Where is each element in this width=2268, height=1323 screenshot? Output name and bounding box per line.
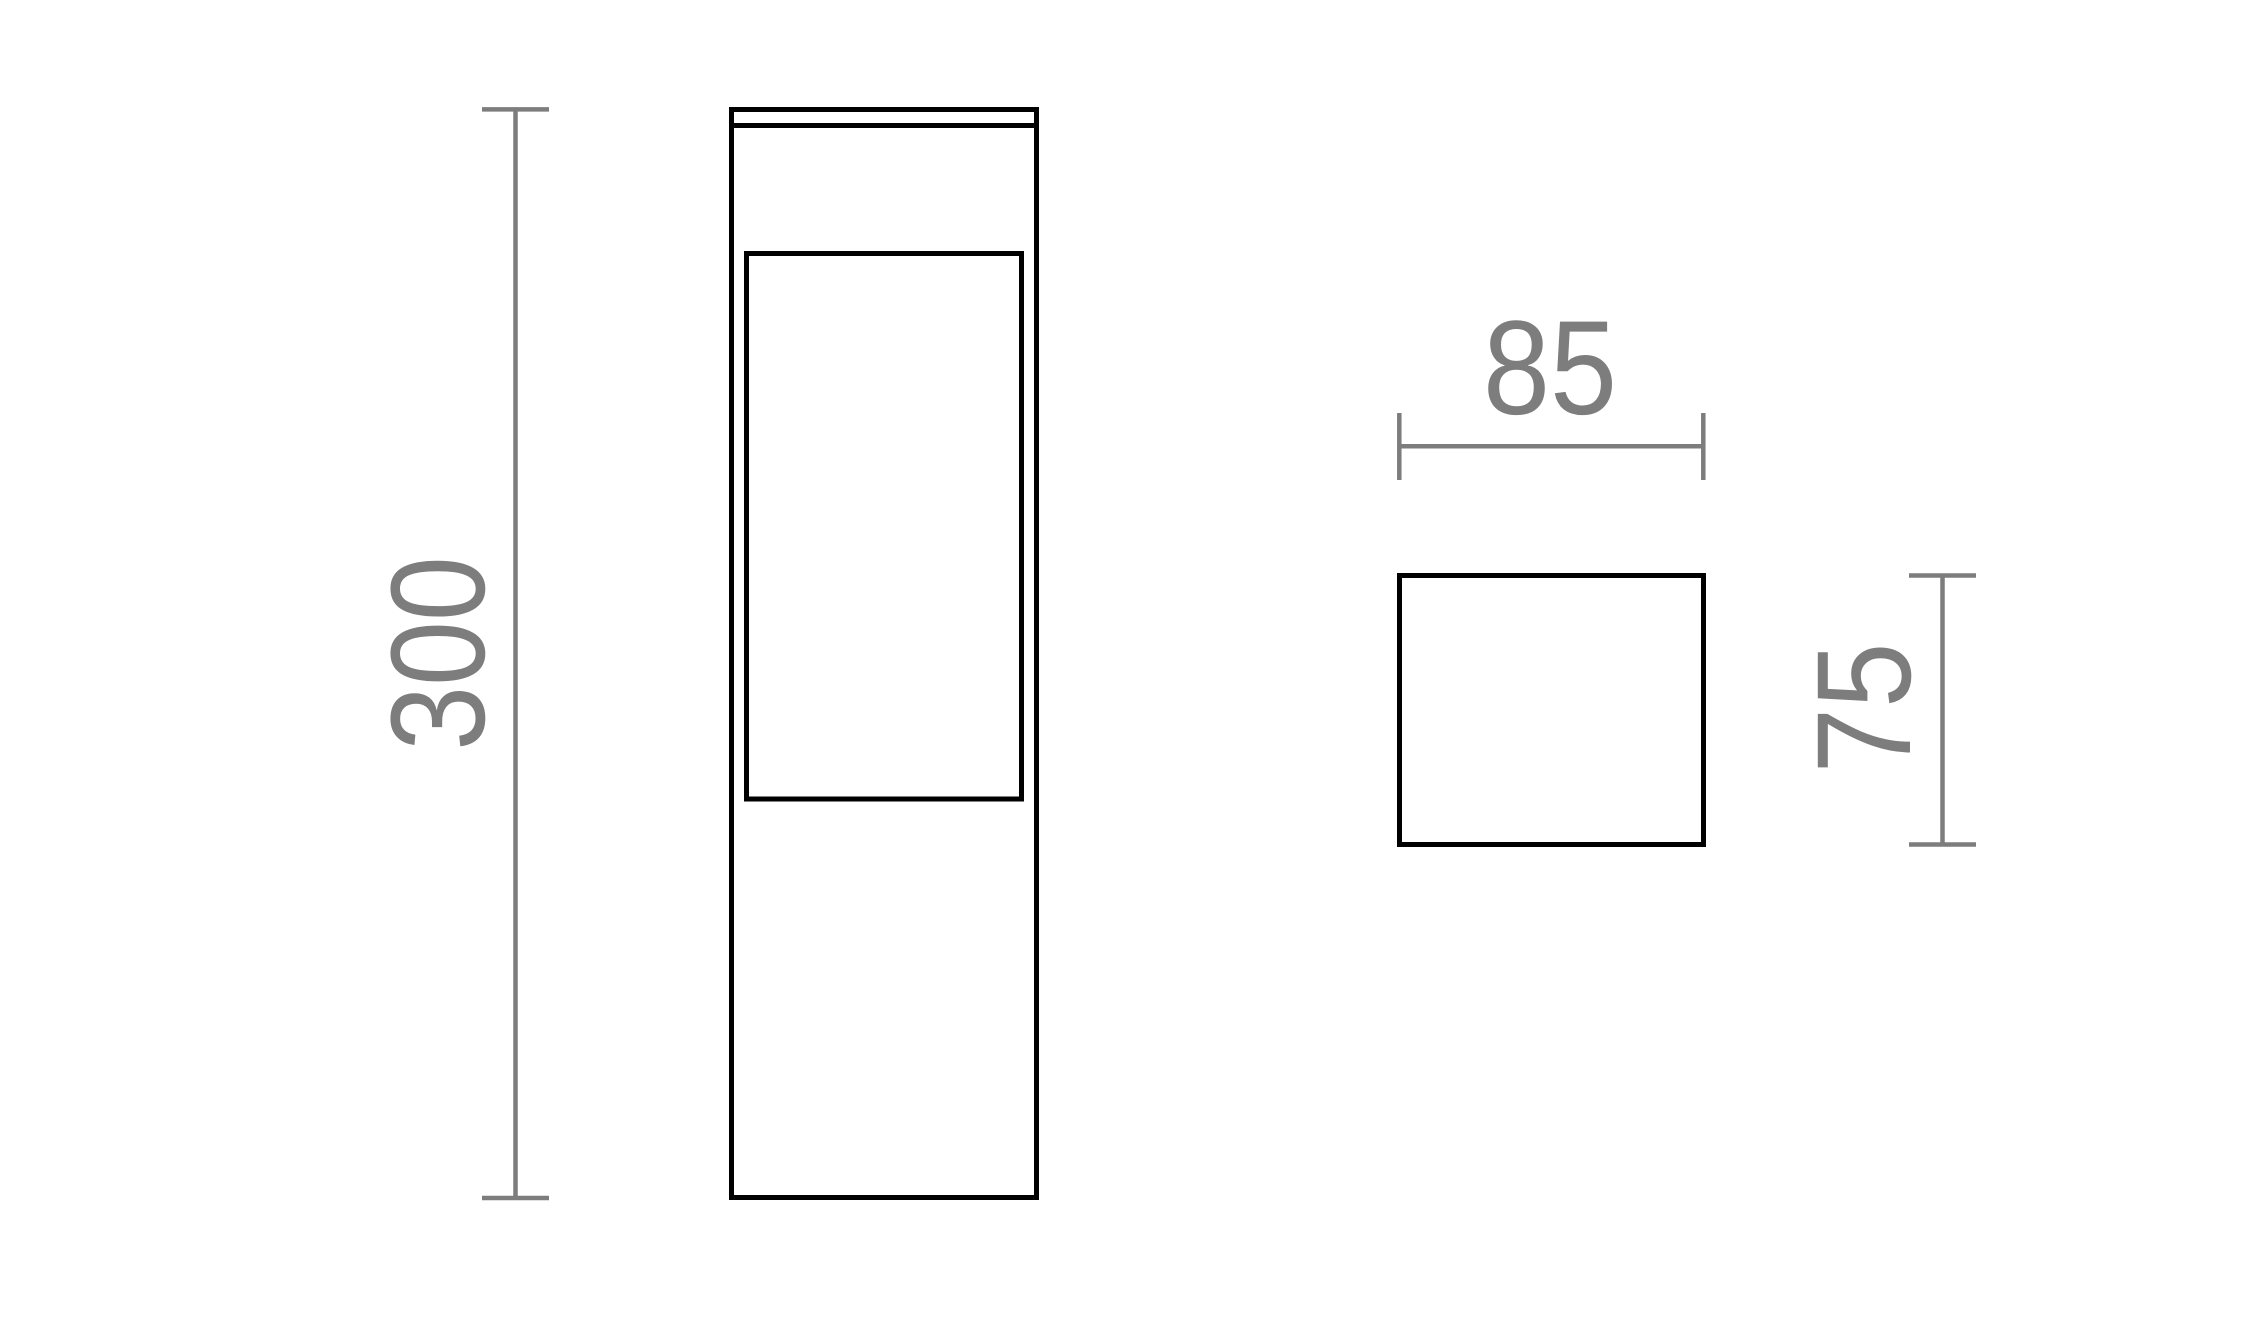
svg-text:85: 85 bbox=[1483, 293, 1617, 442]
svg-text:300: 300 bbox=[362, 556, 512, 750]
svg-text:75: 75 bbox=[1789, 643, 1939, 774]
